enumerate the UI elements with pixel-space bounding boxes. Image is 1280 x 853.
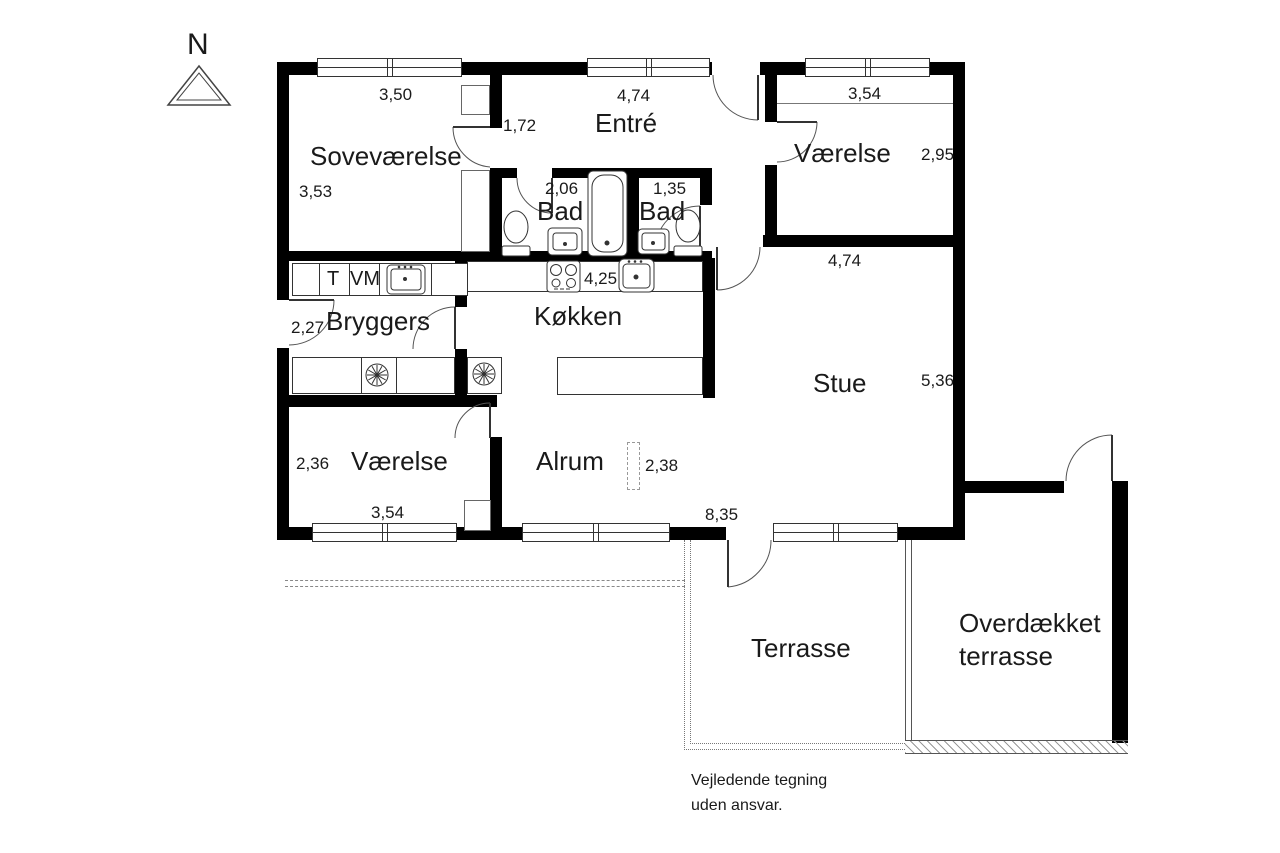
room-label-bad-right: Bad — [639, 196, 685, 227]
room-label-stue: Stue — [813, 368, 867, 399]
dim-label: 1,35 — [653, 179, 686, 199]
room-label-koekken: Køkken — [534, 301, 622, 332]
dim-label: 2,38 — [645, 456, 678, 476]
disclaimer-line1: Vejledende tegning — [691, 768, 827, 793]
room-label-vaerelse-ne: Værelse — [794, 138, 891, 169]
dim-label: 2,27 — [291, 318, 324, 338]
fan-icon — [366, 364, 388, 386]
room-label-entre: Entré — [595, 108, 657, 139]
cooktop-icon — [547, 261, 580, 292]
floor-plan: N Soveværelse 3,50 3,53 Entré 4,74 1,72 … — [0, 0, 1280, 853]
dim-label: 4,74 — [828, 251, 861, 271]
dim-label: 3,53 — [299, 182, 332, 202]
dim-label: 3,50 — [379, 85, 412, 105]
dim-label: 3,54 — [371, 503, 404, 523]
north-arrow-icon — [168, 66, 230, 105]
entry-door — [713, 75, 758, 120]
utility-sink-icon — [387, 265, 425, 294]
door-arc — [1066, 435, 1112, 481]
door-arc — [713, 75, 758, 120]
terrace-door — [728, 540, 771, 587]
dim-label-south-total: 8,35 — [705, 505, 738, 525]
kitchen-sink-icon — [619, 259, 654, 292]
hall-living-door — [717, 247, 760, 290]
room-label-sovevaerelse: Soveværelse — [310, 141, 462, 172]
room-label-overdaekket-line1: Overdækket — [959, 608, 1101, 639]
door-arc — [717, 247, 760, 290]
door-arc — [455, 403, 490, 438]
dim-label: 2,06 — [545, 179, 578, 199]
dryer-label: T — [327, 268, 339, 291]
toilet-icon — [502, 211, 530, 256]
room-sw-door — [455, 403, 490, 438]
room-label-terrasse: Terrasse — [751, 633, 851, 664]
dim-label: 3,54 — [848, 84, 881, 104]
door-arc — [728, 540, 771, 587]
disclaimer-line2: uden ansvar. — [691, 793, 783, 818]
dim-label: 4,25 — [584, 269, 617, 289]
sink-icon — [638, 229, 669, 254]
covered-terrace-door — [1066, 435, 1112, 481]
dim-label: 1,72 — [503, 116, 536, 136]
bathtub-icon — [588, 171, 627, 256]
washing-machine-label: VM — [350, 268, 380, 291]
room-label-bryggers: Bryggers — [326, 306, 430, 337]
sink-icon — [548, 228, 582, 255]
room-label-vaerelse-sw: Værelse — [351, 446, 448, 477]
fan-icon — [473, 363, 495, 385]
room-label-alrum: Alrum — [536, 446, 604, 477]
dim-label: 4,74 — [617, 86, 650, 106]
room-label-bad-left: Bad — [537, 196, 583, 227]
dim-label: 2,95 — [921, 145, 954, 165]
dim-label: 2,36 — [296, 454, 329, 474]
dim-label: 5,36 — [921, 371, 954, 391]
room-label-overdaekket-line2: terrasse — [959, 641, 1053, 672]
north-label: N — [187, 28, 209, 62]
